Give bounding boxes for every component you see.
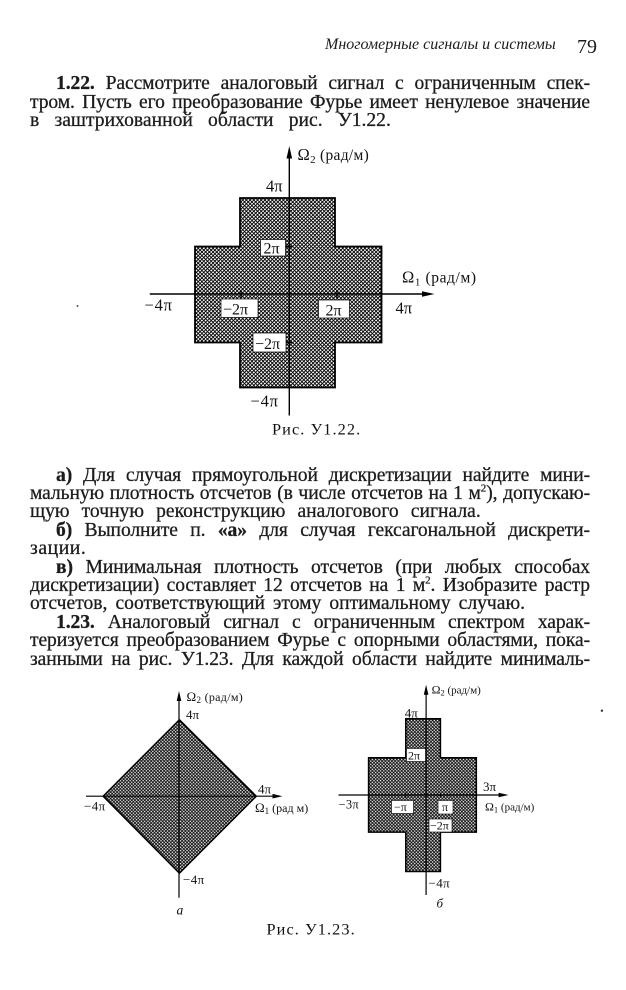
svg-text:4π: 4π [266, 177, 283, 196]
svg-text:б: б [437, 896, 444, 911]
svg-text:3π: 3π [483, 779, 497, 794]
svg-text:−2π: −2π [255, 336, 280, 353]
svg-text:Ω1 (рад м): Ω1 (рад м) [255, 800, 308, 816]
svg-text:−4π: −4π [251, 392, 279, 411]
svg-text:2π: 2π [326, 303, 342, 320]
svg-text:2π: 2π [264, 241, 280, 258]
svg-text:π: π [442, 800, 448, 814]
svg-text:4π: 4π [258, 782, 272, 797]
svg-text:Ω2 (рад/м): Ω2 (рад/м) [187, 689, 244, 705]
svg-text:−4π: −4π [429, 876, 451, 891]
svg-text:а: а [177, 903, 184, 918]
svg-text:Рис. У1.22.: Рис. У1.22. [272, 420, 361, 439]
svg-text:−4π: −4π [145, 296, 173, 315]
svg-text:−2π: −2π [430, 819, 449, 833]
svg-text:4π: 4π [186, 707, 200, 722]
svg-text:−3π: −3π [339, 798, 360, 812]
svg-text:4π: 4π [396, 299, 413, 318]
svg-text:Ω1 (рад/м): Ω1 (рад/м) [402, 268, 477, 289]
svg-text:−2π: −2π [223, 302, 248, 319]
svg-text:Ω2 (рад/м): Ω2 (рад/м) [432, 683, 482, 698]
svg-text:Ω1 (рад/м): Ω1 (рад/м) [485, 800, 535, 815]
svg-text:−4π: −4π [183, 872, 205, 887]
svg-text:−π: −π [394, 800, 407, 814]
svg-text:4π: 4π [405, 706, 419, 721]
svg-text:−4π: −4π [84, 799, 106, 814]
svg-text:2π: 2π [408, 749, 420, 763]
svg-text:Ω2 (рад/м): Ω2 (рад/м) [298, 145, 370, 166]
svg-text:Рис. У1.23.: Рис. У1.23. [267, 920, 356, 939]
